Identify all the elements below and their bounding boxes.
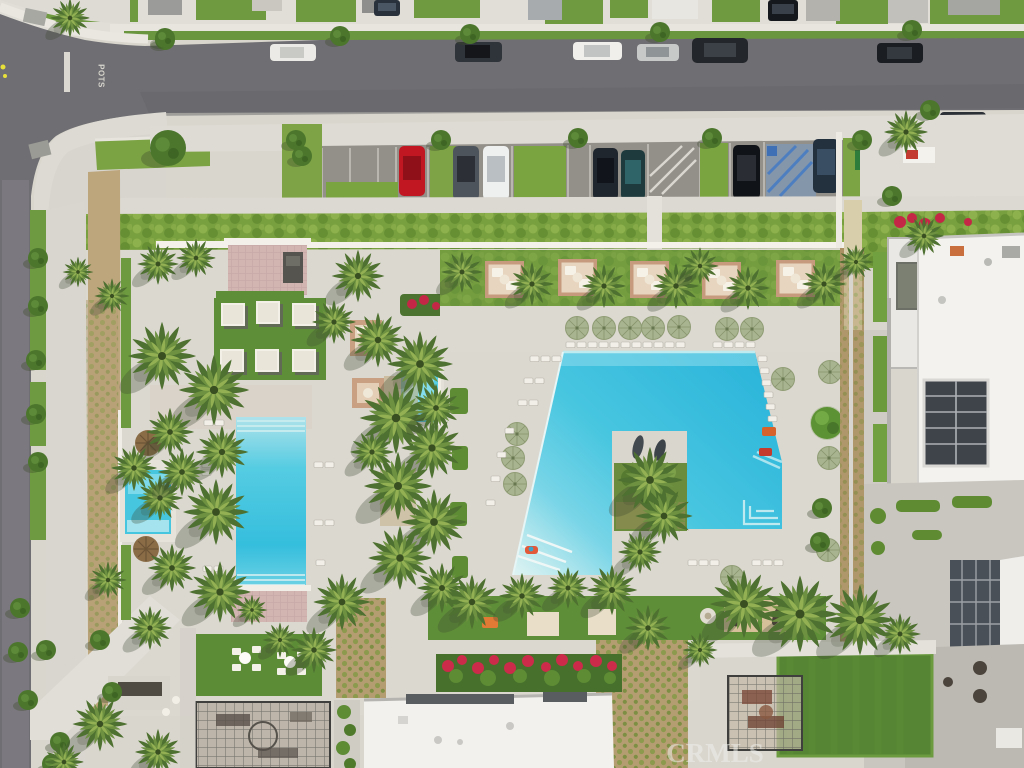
svg-text:POTS: POTS [97,64,106,88]
svg-text:CRMLS: CRMLS [666,738,764,768]
